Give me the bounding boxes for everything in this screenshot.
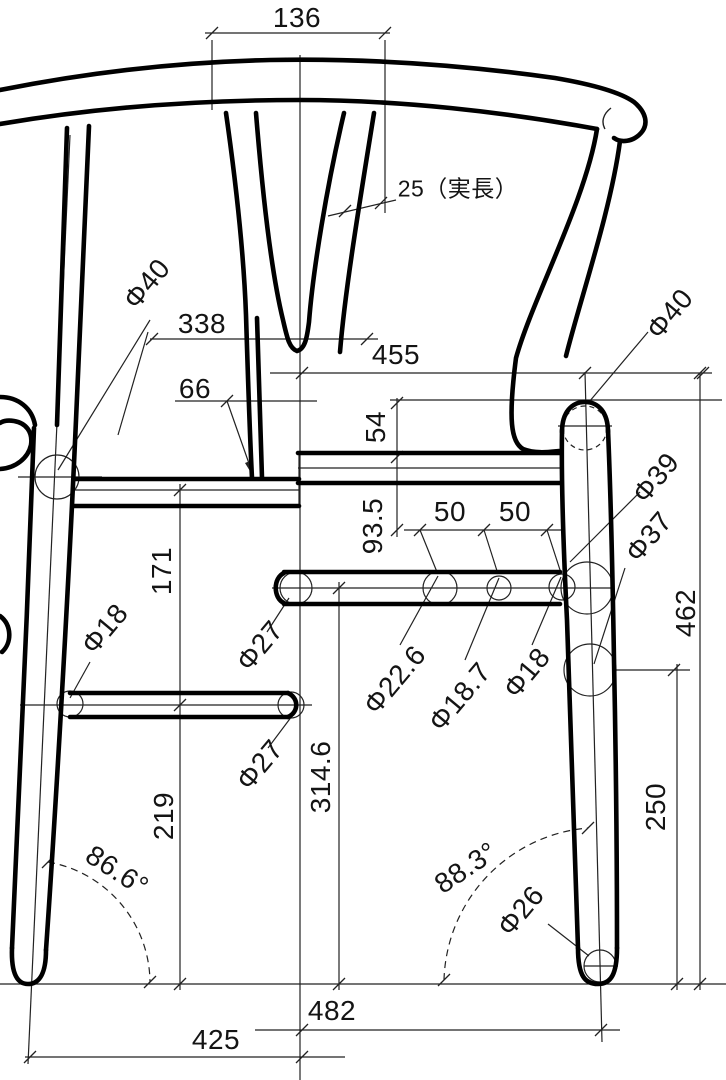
dim-455-label: 455 — [372, 341, 420, 369]
dim-314-6-label: 314.6 — [307, 741, 335, 814]
dim-250-label: 250 — [642, 783, 670, 831]
dim-462-label: 462 — [672, 589, 700, 637]
dim-25-actual-length-label: 25（実長） — [398, 178, 519, 201]
dim-54-label: 54 — [362, 411, 390, 443]
dim-425-label: 425 — [192, 1026, 240, 1054]
dim-482-label: 482 — [308, 997, 356, 1025]
dim-338-label: 338 — [178, 310, 226, 338]
dim-171-label: 171 — [148, 547, 176, 595]
arm-hook-inner-arc — [603, 108, 611, 129]
dim-66-label: 66 — [179, 375, 211, 403]
dim-219-label: 219 — [150, 792, 178, 840]
dim-136-label: 136 — [273, 4, 321, 32]
dim-50-right-label: 50 — [499, 498, 531, 526]
chair-dimension-drawing: 136 25（実長） Φ40 338 455 66 54 Φ40 93.5 50… — [0, 0, 726, 1080]
dim-93-5-label: 93.5 — [359, 498, 387, 555]
dim-50-left-label: 50 — [434, 498, 466, 526]
